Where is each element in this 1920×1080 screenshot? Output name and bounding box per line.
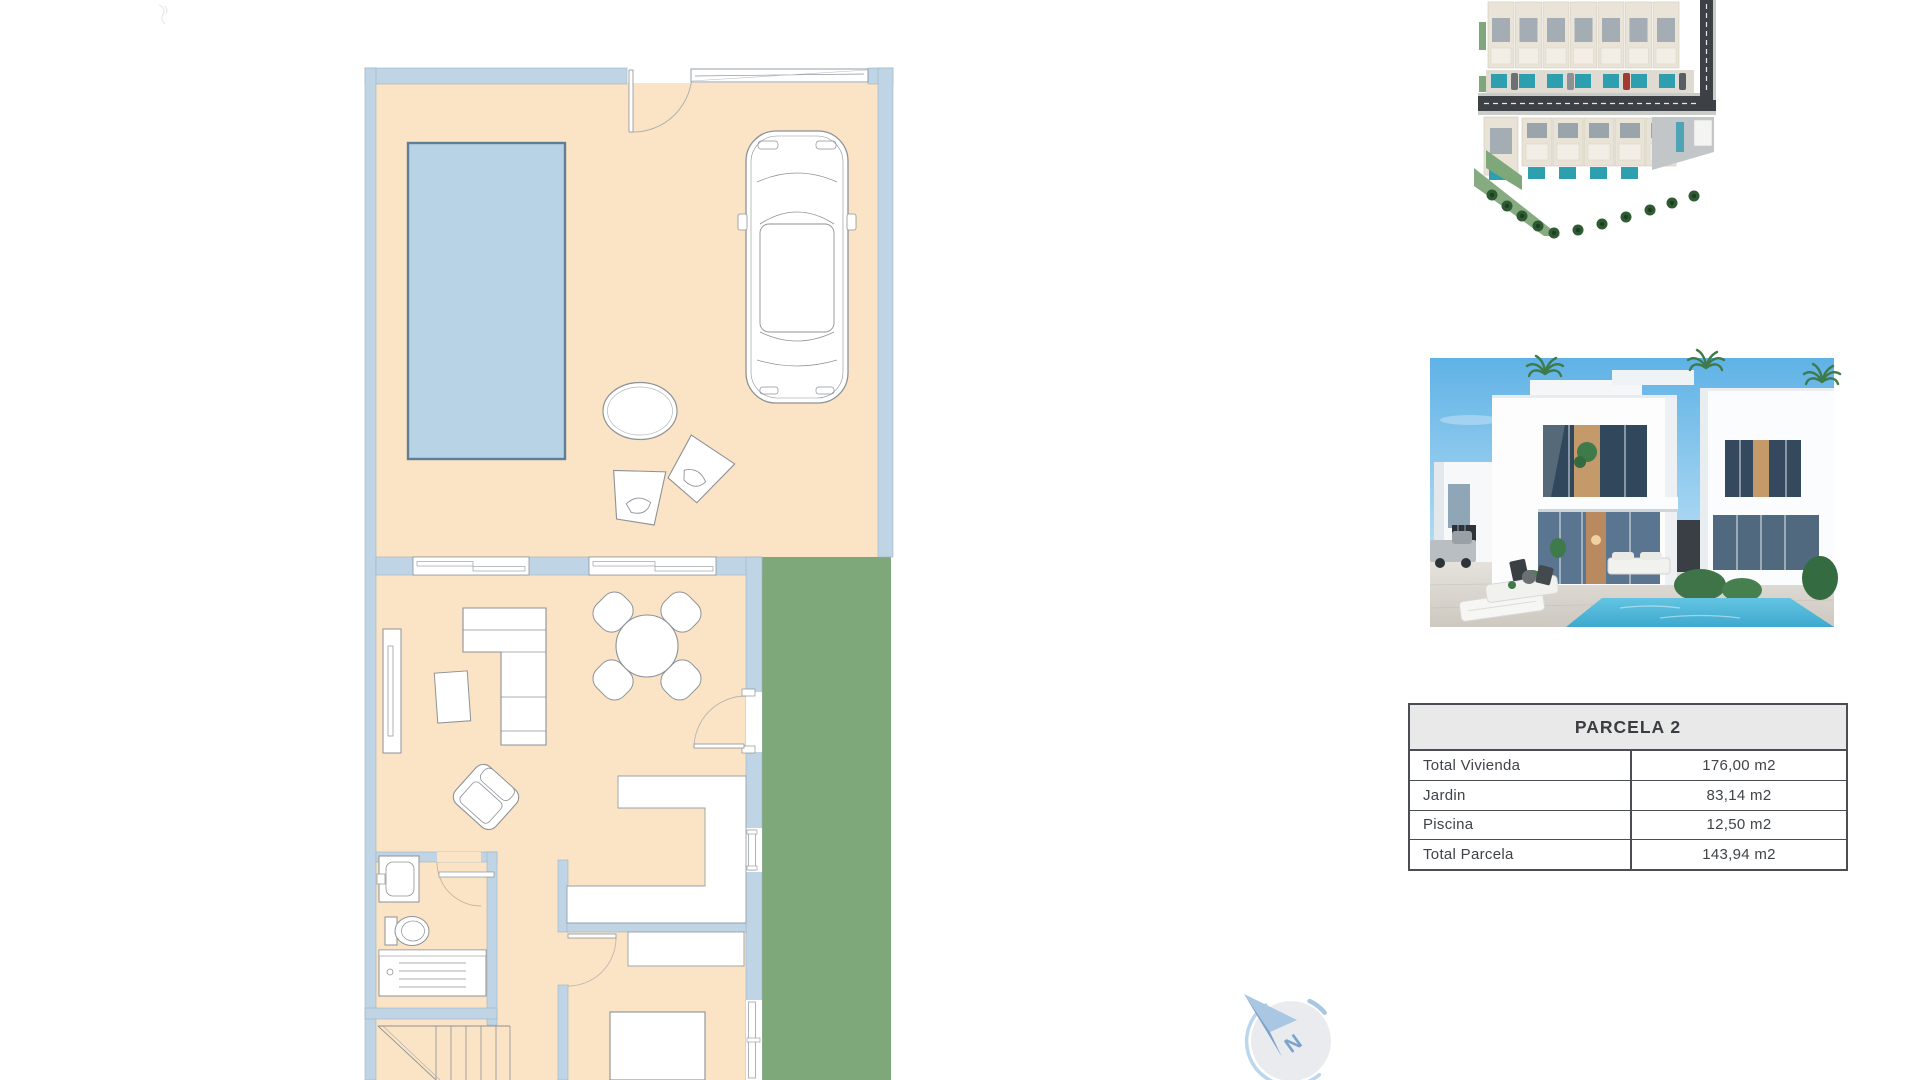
site-plan	[1474, 0, 1716, 239]
villa-render	[1430, 350, 1840, 627]
row-label: Total Vivienda	[1410, 751, 1632, 780]
kitchen-counter-b	[628, 932, 744, 966]
row-value: 176,00 m2	[1632, 751, 1846, 780]
coffee-table	[434, 671, 470, 723]
garage-door	[691, 69, 868, 82]
table-row: Total Parcela 143,94 m2	[1410, 840, 1846, 869]
row-label: Total Parcela	[1410, 840, 1632, 869]
page: { "parcela_table": { "title": "PARCELA 2…	[0, 0, 1920, 1080]
dining-table	[616, 615, 678, 677]
row-value: 143,94 m2	[1632, 840, 1846, 869]
row-label: Piscina	[1410, 811, 1632, 840]
towel-rail	[439, 872, 494, 877]
row-value: 12,50 m2	[1632, 811, 1846, 840]
table-row: Total Vivienda 176,00 m2	[1410, 751, 1846, 781]
garden	[762, 557, 891, 1080]
row-label: Jardin	[1410, 781, 1632, 810]
table-row: Piscina 12,50 m2	[1410, 811, 1846, 841]
tv-unit	[383, 629, 401, 753]
parcela-table-title: PARCELA 2	[1410, 705, 1846, 751]
compass-icon: N	[1244, 994, 1331, 1080]
pool	[408, 143, 565, 459]
shower	[379, 950, 486, 996]
terrace-table	[603, 383, 677, 440]
car	[738, 131, 856, 403]
bed	[610, 1012, 705, 1080]
page-canvas: N	[0, 0, 1920, 1080]
sink	[377, 856, 419, 902]
row-value: 83,14 m2	[1632, 781, 1846, 810]
table-row: Jardin 83,14 m2	[1410, 781, 1846, 811]
parcela-table: PARCELA 2 Total Vivienda 176,00 m2 Jardi…	[1408, 703, 1848, 871]
floor-plan	[365, 68, 893, 1080]
toilet	[385, 917, 429, 946]
faint-logo	[159, 5, 167, 24]
